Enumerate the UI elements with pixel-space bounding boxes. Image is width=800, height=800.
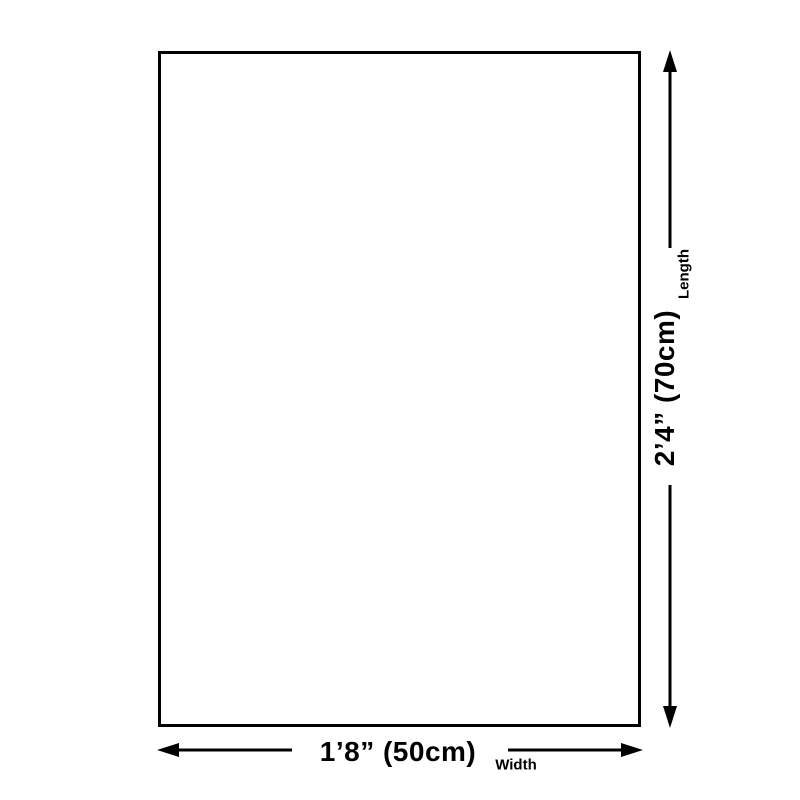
width-arrow-right-icon	[508, 743, 643, 757]
length-arrow-top-icon	[663, 50, 677, 248]
dimension-diagram: 1’8” (50cm) Width 2’4” (70cm) Length	[0, 0, 800, 800]
product-outline	[158, 51, 641, 727]
width-arrow-left-icon	[157, 743, 292, 757]
length-dimension-value: 2’4” (70cm)	[649, 310, 681, 466]
length-arrow-bottom-icon	[663, 485, 677, 728]
length-dimension-label: Length	[676, 249, 693, 299]
width-dimension-label: Width	[495, 757, 537, 774]
width-dimension-value: 1’8” (50cm)	[320, 736, 476, 768]
